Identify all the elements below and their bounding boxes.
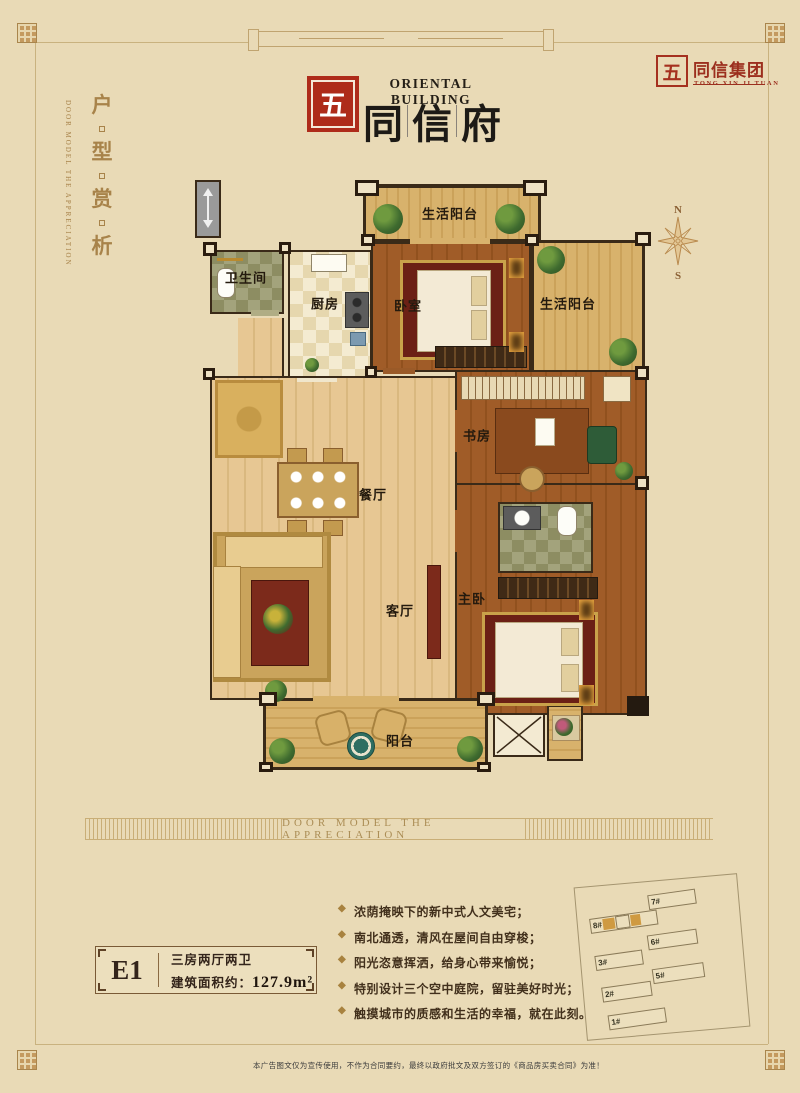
room-label-living: 客厅 — [386, 601, 414, 620]
poster-page: { "page": { "background": "#e9dab6", "di… — [0, 0, 800, 1093]
corridor-strip — [238, 318, 284, 378]
side-title-chinese: 户 型 赏 析 — [90, 95, 114, 257]
study-chair — [587, 426, 617, 464]
wall-pillar — [259, 762, 273, 772]
corner-ornament-top-left — [17, 23, 37, 43]
study-plant — [615, 462, 633, 480]
wall-pillar — [355, 180, 379, 196]
feature-list: 浓荫掩映下的新中式人文美宅； 南北通透，清风在屋间自由穿梭； 阳光恣意挥洒，给身… — [338, 903, 592, 1031]
brand-divider — [456, 105, 457, 137]
floor-plan: 生活阳台 卧室 生活阳台 卫生间 厨房 书房 餐厅 客厅 主卧 阳台 — [195, 180, 655, 800]
scroll-ornament — [258, 31, 544, 47]
kitchen-stove — [345, 292, 369, 328]
room-label-dining: 餐厅 — [359, 485, 387, 504]
living-sofa-top — [225, 536, 323, 568]
feature-item: 浓荫掩映下的新中式人文美宅； — [338, 903, 592, 920]
elevator-shaft — [195, 180, 221, 238]
site-building-7: 7# — [647, 889, 697, 911]
unit-code: E1 — [96, 955, 158, 986]
wall-pillar — [525, 234, 539, 246]
feature-item: 南北通透，清风在屋间自由穿梭； — [338, 929, 592, 946]
balcony-top-plant — [495, 204, 525, 234]
corner-ornament-top-right — [765, 23, 785, 43]
wall-pillar — [365, 366, 377, 378]
kitchen-sink-counter — [311, 254, 347, 272]
study-cabinet — [603, 376, 631, 402]
scroll-cap-right — [543, 29, 554, 51]
study-stool — [519, 466, 545, 492]
bedroom2-lamp — [509, 258, 524, 278]
room-label-bedroom2: 卧室 — [394, 296, 422, 315]
square-separator-icon — [99, 220, 105, 226]
door-bedroom2 — [383, 368, 415, 374]
master-pillow — [561, 664, 579, 692]
site-building-2: 2# — [601, 981, 653, 1003]
balcony-right-plant — [537, 246, 565, 274]
site-building-1: 1# — [608, 1007, 668, 1030]
balcony-bottom-plant — [457, 736, 483, 762]
disclaimer-text: 本广告图文仅为宣传使用，不作为合同要约，最终以政府批文及双方签订的《商品房买卖合… — [253, 1060, 604, 1071]
square-separator-icon — [99, 126, 105, 132]
corner-mark — [306, 949, 314, 957]
banner-title: DOOR MODEL THE APPRECIATION — [282, 819, 523, 839]
wall-pillar — [361, 234, 375, 246]
entry-plant — [555, 718, 573, 736]
wall-pillar — [279, 242, 291, 254]
site-plan: 7# 8# 6# 3# 5# 2# 1# — [574, 873, 751, 1041]
corner-ornament-bottom-right — [765, 1050, 785, 1070]
living-sofa-left — [213, 566, 241, 678]
side-title-char-1: 户 — [92, 95, 113, 116]
wall-pillar — [635, 366, 649, 380]
balcony-table — [347, 732, 375, 760]
brand-char-1: 同 — [363, 92, 403, 150]
corner-ornament-bottom-left — [17, 1050, 37, 1070]
bathroom-towel-bar — [217, 258, 243, 261]
master-bath-toilet — [557, 506, 577, 536]
room-label-balcony-top: 生活阳台 — [422, 204, 478, 223]
compass-south-label: S — [650, 271, 706, 282]
door-master — [455, 510, 459, 552]
room-label-kitchen: 厨房 — [311, 294, 339, 313]
brand-char-2: 信 — [412, 92, 452, 150]
balcony-top-plant — [373, 204, 403, 234]
side-title-char-2: 型 — [92, 142, 113, 163]
site-building-5: 5# — [652, 962, 706, 984]
compass-north-label: N — [650, 205, 706, 216]
wall-pillar — [203, 368, 215, 380]
kitchen-cabinet — [350, 332, 366, 346]
bedroom2-lamp — [509, 332, 524, 352]
site-highlight-block — [602, 918, 615, 931]
study-bookshelf — [461, 376, 585, 400]
square-separator-icon — [99, 173, 105, 179]
room-label-study: 书房 — [463, 426, 491, 445]
stair-arrows-icon — [197, 182, 219, 234]
group-seal-icon: 五 — [656, 55, 688, 87]
site-building-6: 6# — [647, 929, 699, 951]
brand-name-chinese: 同 信 府 — [362, 92, 502, 150]
room-label-master: 主卧 — [458, 589, 486, 608]
master-bath-sink — [503, 506, 541, 530]
feature-item: 阳光恣意挥洒，给身心带来愉悦； — [338, 954, 592, 971]
brand-char-3: 府 — [461, 92, 501, 150]
group-name-english: TONG XIN JI TUAN — [694, 80, 780, 87]
compass-star-icon — [650, 216, 706, 266]
bedroom2-pillow — [471, 276, 487, 306]
side-title-char-4: 析 — [92, 236, 113, 257]
master-pillow — [561, 628, 579, 656]
unit-info-box: E1 三房两厅两卫 建筑面积约：127.9m² — [95, 946, 317, 994]
room-label-balcony-bottom: 阳台 — [386, 731, 414, 750]
living-table-flowers — [263, 604, 293, 634]
flue-shaft — [493, 713, 545, 757]
unit-layout: 三房两厅两卫 — [171, 949, 313, 968]
wall-pillar — [635, 476, 649, 490]
kitchen-plant — [305, 358, 319, 372]
door-balcony-bottom — [313, 696, 399, 702]
wall-pillar — [203, 242, 217, 256]
site-building-3: 3# — [594, 949, 644, 971]
brand-seal-character: 五 — [311, 80, 355, 128]
master-wardrobe — [498, 577, 598, 599]
bedroom2-pillow — [471, 310, 487, 340]
compass-rose: N S — [650, 205, 706, 281]
wall-pillar — [477, 762, 491, 772]
scroll-tick-right — [418, 38, 503, 39]
side-title-char-3: 赏 — [92, 189, 113, 210]
master-lamp — [579, 685, 594, 705]
balcony-bottom-plant — [269, 738, 295, 764]
corner-mark — [306, 983, 314, 991]
frame-left-line — [35, 42, 36, 1044]
unit-area-line: 建筑面积约：127.9m² — [171, 972, 313, 992]
balcony-right-plant — [609, 338, 637, 366]
brand-seal-icon: 五 — [307, 76, 359, 132]
corner-mark — [98, 949, 106, 957]
brand-divider — [407, 105, 408, 137]
entry-rug — [215, 380, 283, 458]
tv-cabinet — [427, 565, 441, 659]
unit-area-label: 建筑面积约： — [171, 976, 252, 990]
scroll-tick-left — [299, 38, 384, 39]
wall-pillar — [523, 180, 547, 196]
section-banner: DOOR MODEL THE APPRECIATION — [85, 818, 713, 840]
site-highlight-block — [630, 914, 641, 926]
frame-right-line — [768, 42, 769, 1044]
wall-pillar — [635, 232, 651, 246]
flue-x-icon — [495, 715, 543, 755]
door-balcony-top — [410, 238, 490, 244]
frame-bottom-line — [35, 1044, 768, 1045]
wall-pillar — [259, 692, 277, 706]
door-bathroom — [251, 310, 279, 316]
feature-item: 触摸城市的质感和生活的幸福，就在此刻。 — [338, 1005, 592, 1022]
scroll-cap-left — [248, 29, 259, 51]
site-block — [615, 914, 631, 929]
feature-item: 特别设计三个空中庭院，留驻美好时光； — [338, 980, 592, 997]
site-building-8: 8# — [589, 910, 658, 934]
unit-area-value: 127.9m² — [252, 974, 313, 991]
room-label-balcony-right: 生活阳台 — [540, 294, 596, 313]
study-paper — [535, 418, 555, 446]
master-lamp — [579, 600, 594, 620]
room-label-bathroom: 卫生间 — [225, 268, 267, 287]
door-study — [455, 410, 459, 452]
wall-pillar — [477, 692, 495, 706]
wall-pillar-dark — [627, 696, 649, 716]
dining-table — [277, 462, 359, 518]
corner-mark — [98, 983, 106, 991]
door-kitchen — [297, 378, 337, 382]
side-title-english: DOOR MODEL THE APPRECIATION — [64, 100, 72, 270]
